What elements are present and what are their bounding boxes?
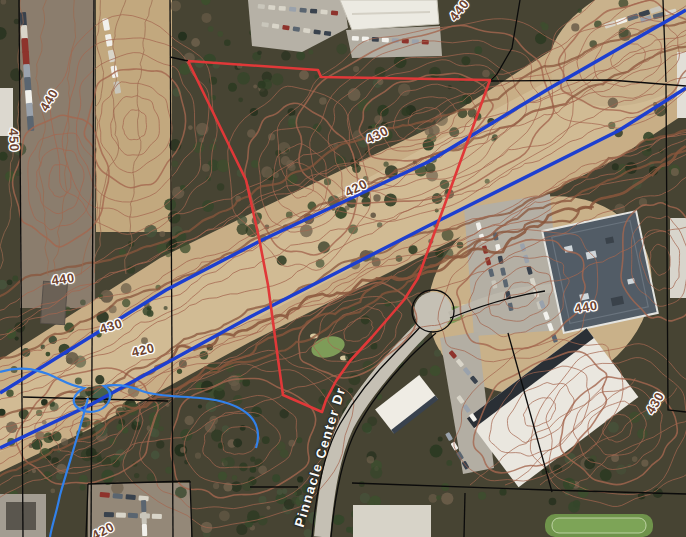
map-viewport[interactable]: 450 440 440 430 420 430 420 440 440 430 … xyxy=(0,0,686,537)
aerial-basemap xyxy=(0,0,686,537)
